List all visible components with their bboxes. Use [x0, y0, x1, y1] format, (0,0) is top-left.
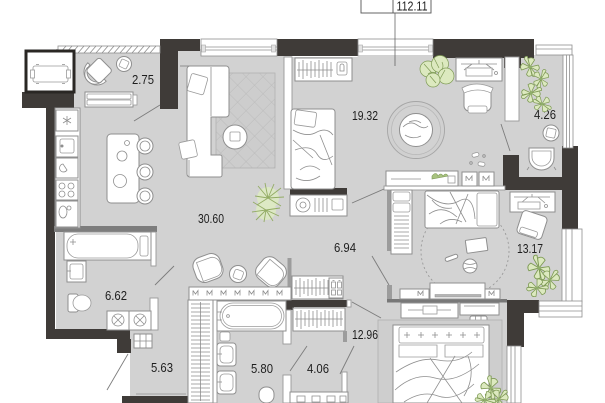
svg-text:5.63: 5.63 — [151, 360, 173, 375]
svg-text:19.32: 19.32 — [352, 108, 378, 123]
svg-text:6.62: 6.62 — [105, 288, 127, 303]
svg-text:112.11: 112.11 — [397, 0, 428, 14]
svg-text:12.96: 12.96 — [352, 327, 378, 342]
svg-text:4.06: 4.06 — [307, 361, 329, 376]
svg-text:13.17: 13.17 — [517, 241, 543, 256]
svg-text:6.94: 6.94 — [334, 240, 356, 255]
svg-text:5.80: 5.80 — [251, 361, 273, 376]
svg-text:30.60: 30.60 — [198, 211, 224, 226]
svg-text:2.75: 2.75 — [132, 72, 154, 87]
